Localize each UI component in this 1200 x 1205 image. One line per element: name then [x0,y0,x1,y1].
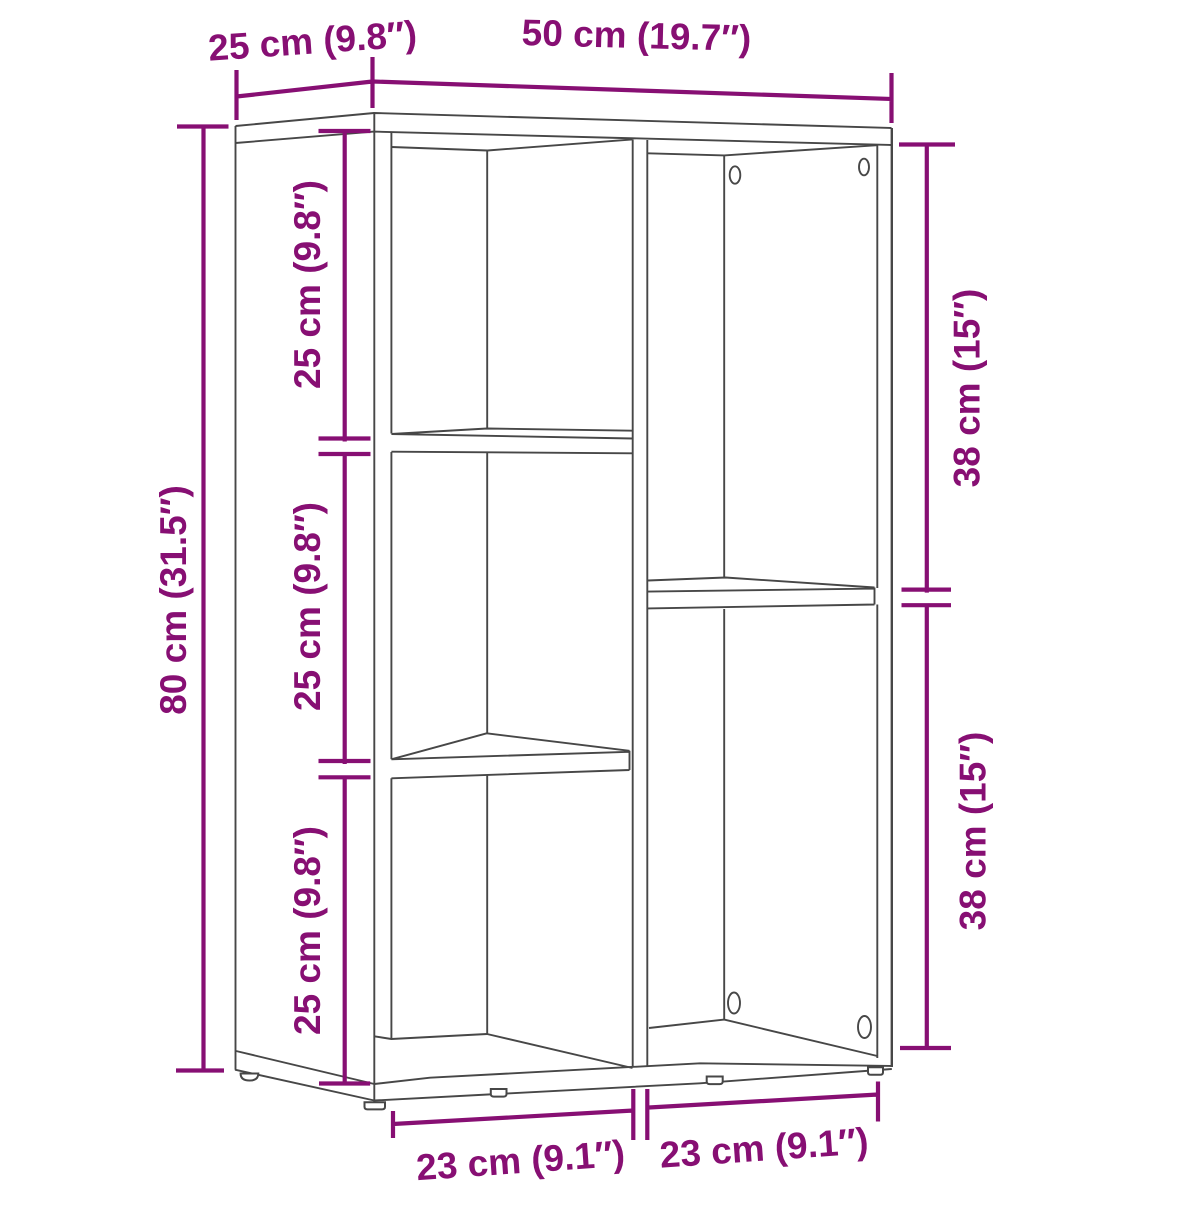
svg-text:25 cm (9.8″): 25 cm (9.8″) [287,826,328,1035]
svg-text:25 cm (9.8″): 25 cm (9.8″) [287,180,328,389]
svg-text:38 cm (15″): 38 cm (15″) [953,732,994,931]
svg-text:25 cm (9.8″): 25 cm (9.8″) [287,502,328,711]
svg-text:50 cm (19.7″): 50 cm (19.7″) [521,12,752,59]
svg-text:38 cm (15″): 38 cm (15″) [947,289,988,488]
svg-text:80 cm (31.5″): 80 cm (31.5″) [153,485,194,715]
